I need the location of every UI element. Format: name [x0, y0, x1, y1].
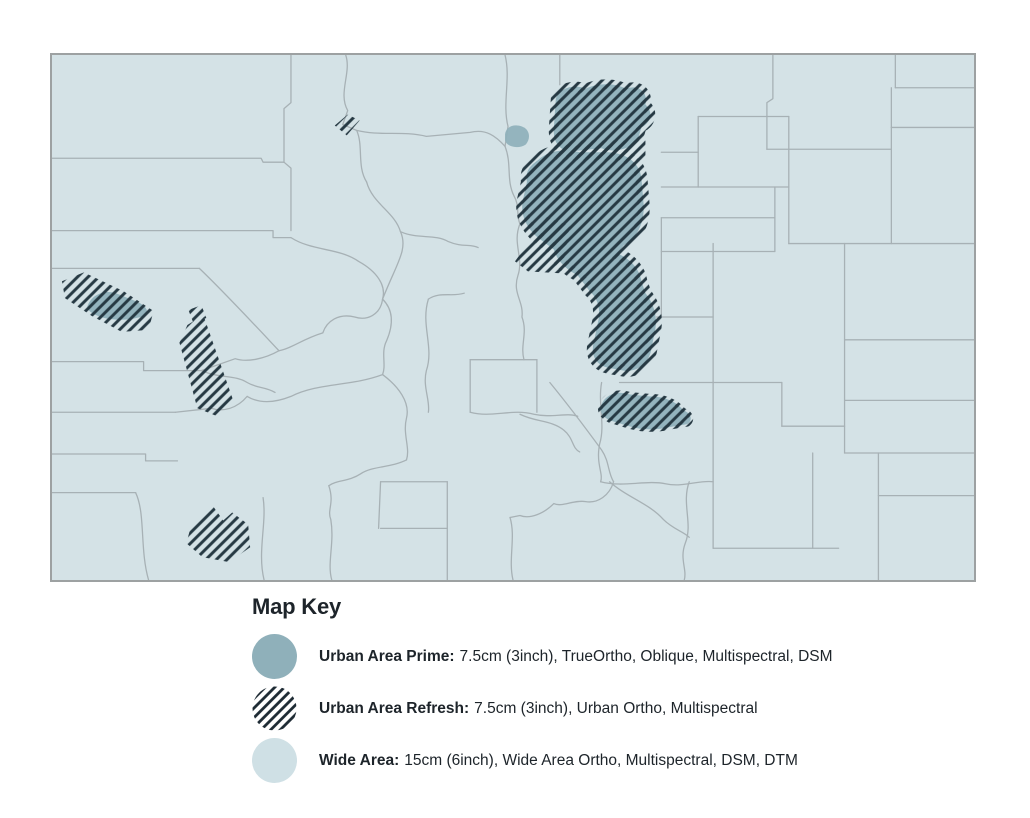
prime-small-north-blob: [505, 125, 529, 147]
legend-item-wide-area: Wide Area:15cm (6inch), Wide Area Ortho,…: [252, 738, 892, 783]
map-key-title: Map Key: [252, 594, 892, 620]
legend-label-desc: 7.5cm (3inch), TrueOrtho, Oblique, Multi…: [460, 648, 833, 665]
wide-area-label: Wide Area:15cm (6inch), Wide Area Ortho,…: [319, 752, 798, 770]
map-frame: [50, 53, 976, 582]
hatched-circle-icon: [252, 686, 297, 731]
colorado-county-map: [52, 55, 974, 580]
legend-label-desc: 15cm (6inch), Wide Area Ortho, Multispec…: [404, 752, 798, 769]
map-key: Map Key Urban Area Prime:7.5cm (3inch), …: [252, 594, 892, 790]
page: Map Key Urban Area Prime:7.5cm (3inch), …: [0, 0, 1030, 818]
legend-item-urban-area-prime: Urban Area Prime:7.5cm (3inch), TrueOrth…: [252, 634, 892, 679]
legend-label-bold: Urban Area Prime:: [319, 648, 455, 665]
urban-area-refresh-label: Urban Area Refresh:7.5cm (3inch), Urban …: [319, 700, 758, 718]
legend-label-desc: 7.5cm (3inch), Urban Ortho, Multispectra…: [474, 700, 757, 717]
urban-area-refresh-swatch: [252, 686, 297, 731]
legend-item-urban-area-refresh: Urban Area Refresh:7.5cm (3inch), Urban …: [252, 686, 892, 731]
legend-label-bold: Urban Area Refresh:: [319, 700, 469, 717]
urban-area-prime-swatch: [252, 634, 297, 679]
legend-label-bold: Wide Area:: [319, 752, 399, 769]
urban-area-prime-label: Urban Area Prime:7.5cm (3inch), TrueOrth…: [319, 648, 833, 666]
wide-area-swatch: [252, 738, 297, 783]
